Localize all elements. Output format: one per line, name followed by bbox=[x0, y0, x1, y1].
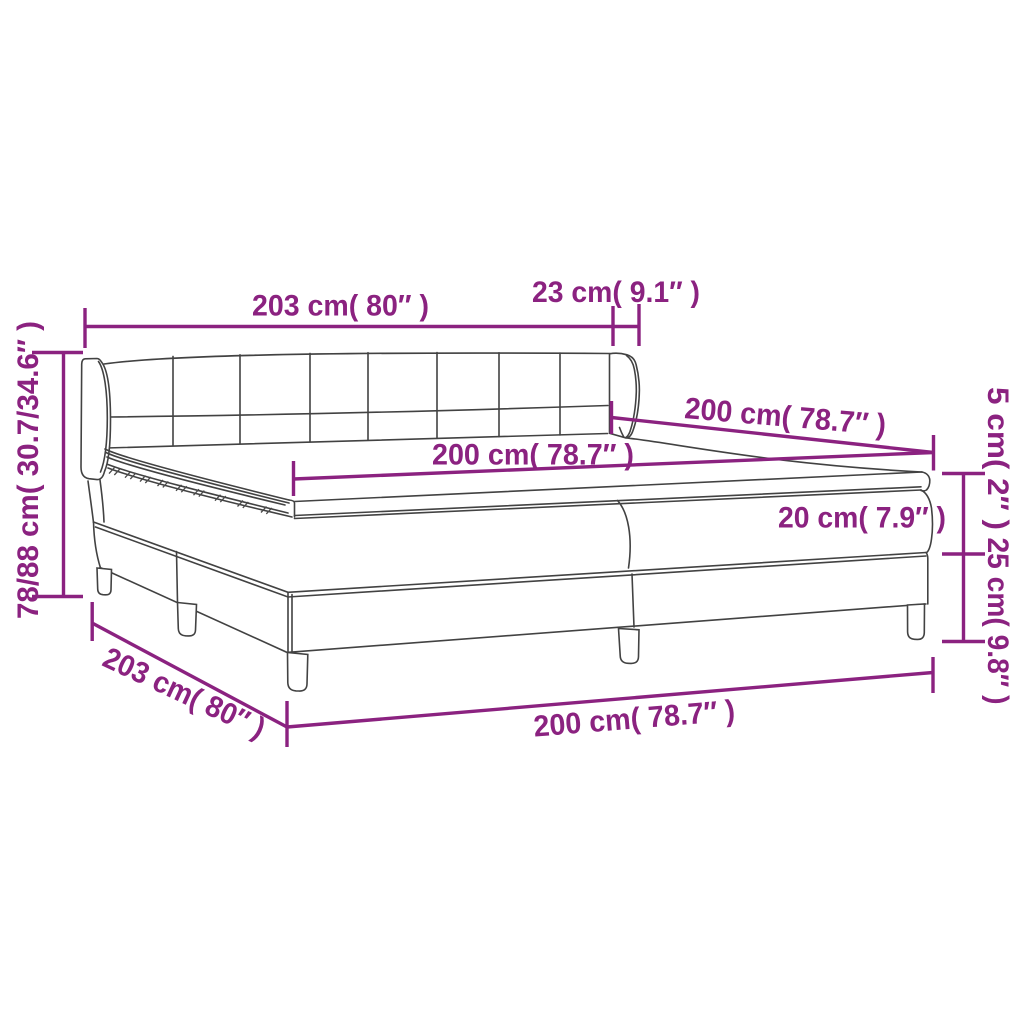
svg-text:200 cm( 78.7″ ): 200 cm( 78.7″ ) bbox=[432, 439, 634, 472]
svg-text:5 cm( 2″ ): 5 cm( 2″ ) bbox=[981, 387, 1014, 530]
svg-text:25 cm( 9.8″ ): 25 cm( 9.8″ ) bbox=[981, 538, 1014, 705]
svg-text:20 cm( 7.9″ ): 20 cm( 7.9″ ) bbox=[778, 502, 946, 535]
svg-text:203 cm( 80″ ): 203 cm( 80″ ) bbox=[252, 290, 429, 323]
svg-text:23 cm( 9.1″ ): 23 cm( 9.1″ ) bbox=[532, 276, 700, 309]
svg-text:78/88 cm( 30.7/34.6″ ): 78/88 cm( 30.7/34.6″ ) bbox=[12, 321, 45, 619]
